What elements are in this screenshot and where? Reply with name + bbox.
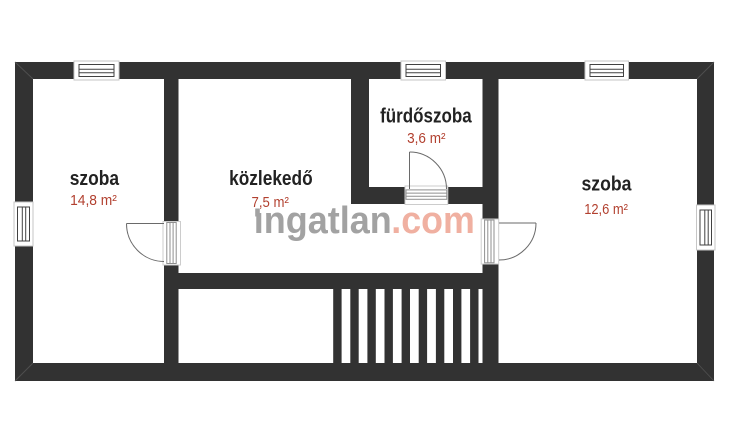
svg-text:.com: .com (391, 200, 475, 242)
svg-text:fürdőszoba: fürdőszoba (380, 105, 472, 128)
svg-text:7,5 m²: 7,5 m² (252, 195, 289, 211)
svg-text:szoba: szoba (582, 173, 633, 196)
svg-text:14,8 m²: 14,8 m² (70, 193, 117, 209)
svg-text:12,6 m²: 12,6 m² (584, 202, 628, 218)
svg-text:közlekedő: közlekedő (229, 167, 313, 190)
svg-text:szoba: szoba (70, 167, 120, 190)
svg-text:3,6 m²: 3,6 m² (407, 131, 446, 147)
